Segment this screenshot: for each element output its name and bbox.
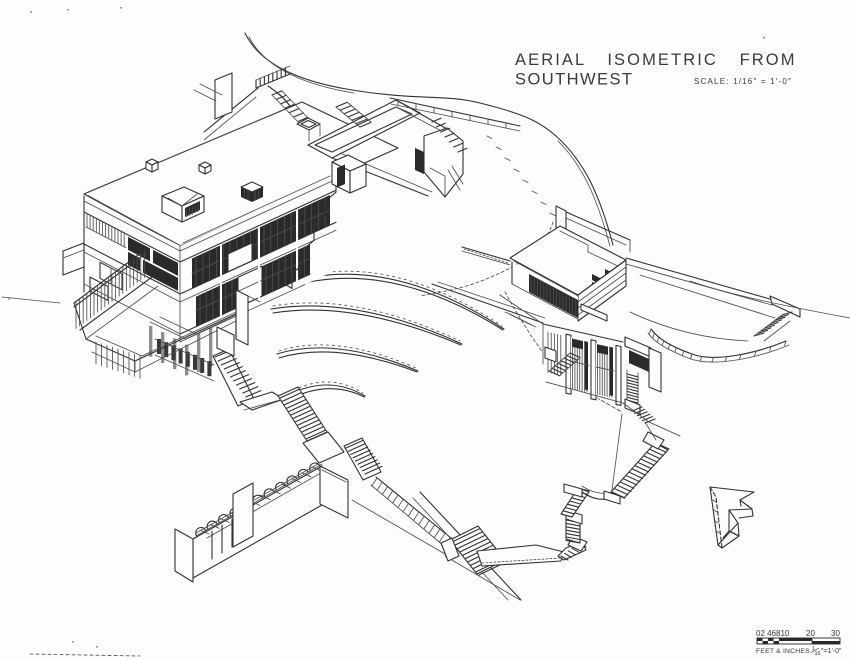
svg-text:″=1′-0″: ″=1′-0″ [821, 648, 842, 655]
svg-text:02 46810: 02 46810 [756, 629, 790, 638]
svg-text:16: 16 [815, 651, 821, 657]
svg-text:30: 30 [831, 629, 840, 638]
svg-text:FEET & INCHES: FEET & INCHES [756, 648, 810, 655]
svg-text:AERIAL ISOMETRIC FROM: AERIAL ISOMETRIC FROM [515, 51, 797, 69]
svg-text:SOUTHWEST: SOUTHWEST [515, 71, 633, 89]
svg-text:20: 20 [806, 629, 815, 638]
svg-text:SCALE: 1/16″ = 1′-0″: SCALE: 1/16″ = 1′-0″ [694, 77, 792, 86]
